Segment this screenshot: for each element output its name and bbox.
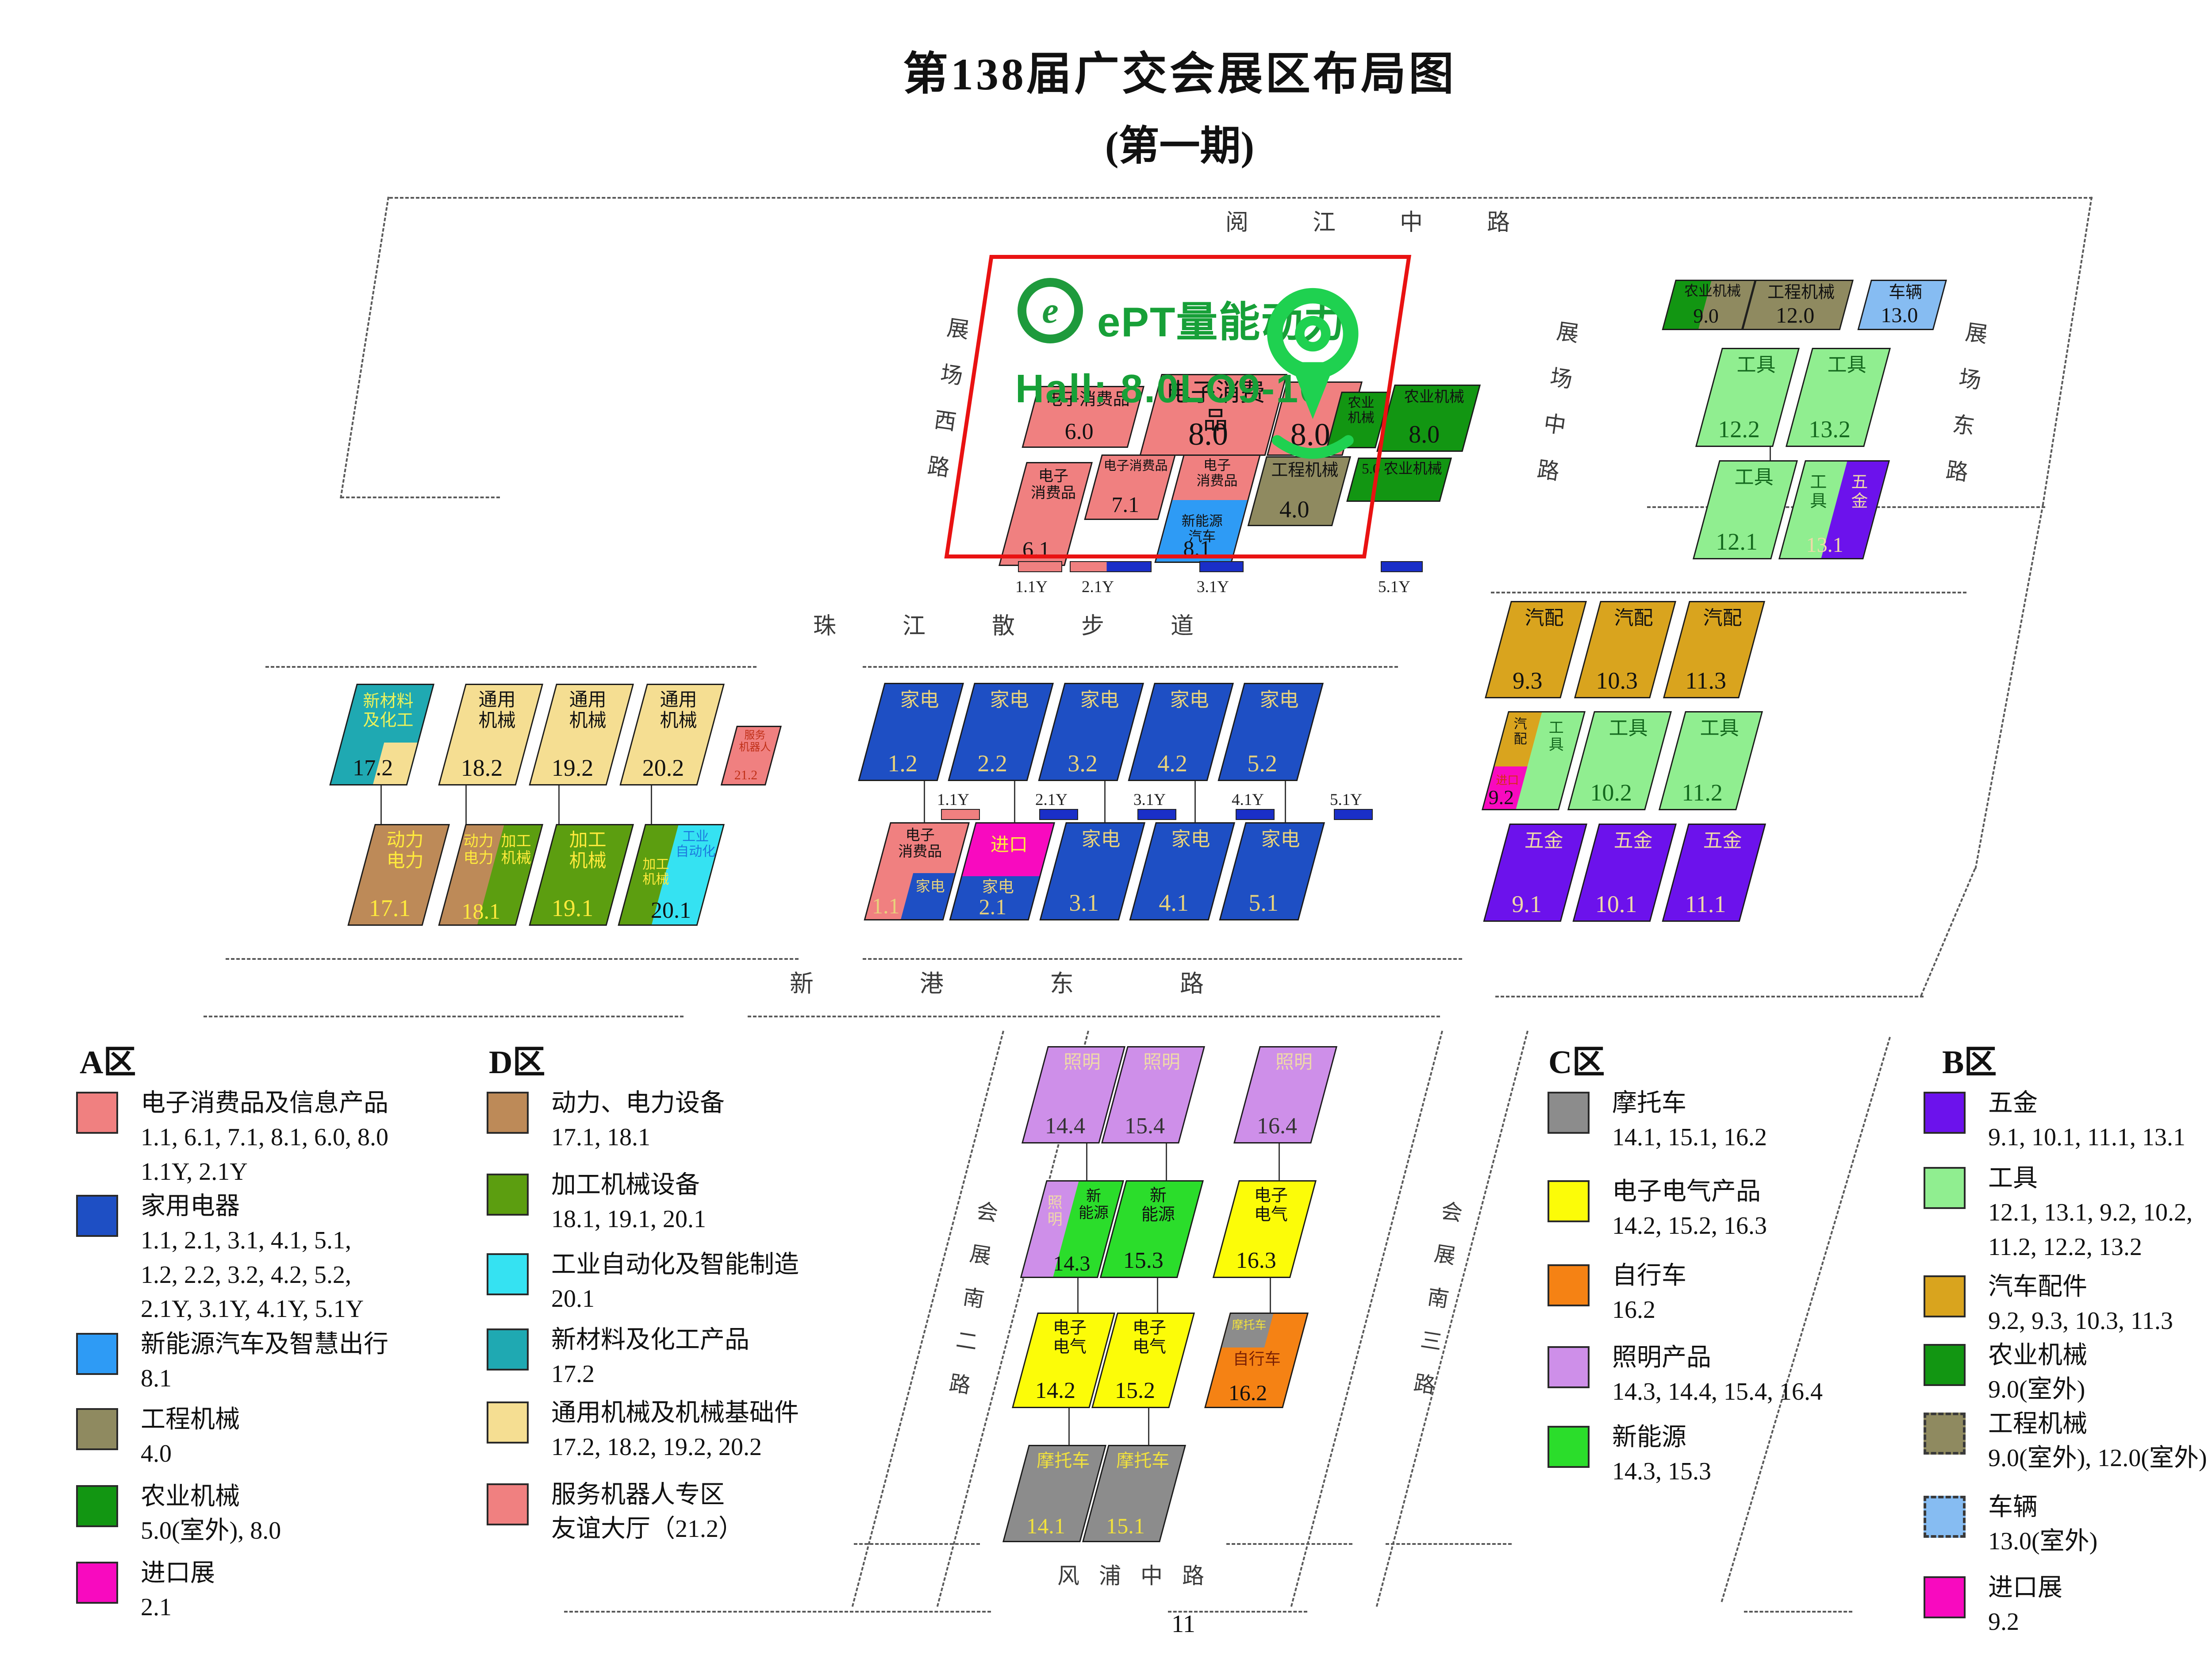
hall-2.1-number: 2.1 <box>954 894 1031 919</box>
legend-item-A-0: 电子消费品及信息产品 1.1, 6.1, 7.1, 8.1, 6.0, 8.0 … <box>141 1086 388 1189</box>
road-label-yuejiang: 阅江中路 <box>1225 212 1574 235</box>
hall-3.2-number: 3.2 <box>1044 750 1121 777</box>
hall-16.3-number: 16.3 <box>1218 1248 1294 1274</box>
hall-4.1: 家电4.1 <box>1129 822 1235 920</box>
building-outline-connector <box>924 781 925 823</box>
legend-item-D-3: 新材料及化工产品 17.2 <box>551 1323 749 1392</box>
hall-1.2-name: 家电 <box>881 689 958 711</box>
hall-5.1: 家电5.1 <box>1219 822 1325 920</box>
hall-5.0-name: 5.0 农业机械 <box>1356 461 1448 477</box>
hall-5.2-name: 家电 <box>1241 689 1318 711</box>
building-outline-connector <box>380 785 382 824</box>
hall-16.2-part-gray: 摩托车 <box>1222 1314 1274 1347</box>
hall-8.0c-name: 农业机械 <box>1392 389 1476 406</box>
legend-swatch-B-1 <box>1924 1167 1966 1209</box>
legend-item-A-5: 进口展 2.1 <box>141 1556 215 1625</box>
road-label-fengpu: 风浦中路 <box>1057 1565 1224 1587</box>
hall-16.4: 照明16.4 <box>1233 1046 1337 1143</box>
y-hall-bar-4.1Y <box>1236 809 1275 820</box>
hall-18.2-number: 18.2 <box>444 755 519 781</box>
building-outline-connector <box>1770 447 1771 461</box>
hall-6.0-number: 6.0 <box>1027 419 1131 445</box>
hall-2.1-part-magenta: 进口 <box>962 824 1053 876</box>
hall-11.3-name: 汽配 <box>1686 607 1759 629</box>
ept-logo-icon: e <box>1018 278 1083 343</box>
hall-2.2-name: 家电 <box>971 689 1048 711</box>
hall-7.1-name: 电子消费品 <box>1100 459 1171 473</box>
legend-swatch-B-3 <box>1924 1344 1966 1386</box>
legend-swatch-A-4 <box>76 1485 118 1527</box>
hall-16.4-number: 16.4 <box>1239 1113 1314 1139</box>
hall-12.0-name: 工程机械 <box>1753 283 1849 302</box>
hall-2.2-number: 2.2 <box>954 750 1031 777</box>
hall-16.2-number: 16.2 <box>1210 1380 1286 1405</box>
site-boundary-dashed-line <box>863 958 1462 960</box>
hall-19.1-number: 19.1 <box>535 895 610 921</box>
hall-11.1-name: 五金 <box>1685 830 1760 851</box>
hall-14.2-number: 14.2 <box>1018 1378 1093 1404</box>
y-hall-label-1.1Y: 1.1Y <box>937 790 969 809</box>
hall-1.2: 家电1.2 <box>858 683 964 781</box>
hall-6.1: 电子 消费品6.1 <box>998 462 1093 566</box>
hall-7.1-number: 7.1 <box>1090 492 1161 517</box>
hall-19.1-name: 加工 机械 <box>550 830 626 872</box>
hall-14.1-name: 摩托车 <box>1025 1451 1101 1471</box>
hall-9.3-name: 汽配 <box>1508 607 1581 629</box>
hall-12.0-number: 12.0 <box>1747 303 1843 327</box>
legend-item-C-4: 新能源 14.3, 15.3 <box>1612 1421 1711 1489</box>
legend-swatch-D-4 <box>487 1401 529 1444</box>
hall-8.1-number: 8.1 <box>1160 536 1234 561</box>
hall-18.2: 通用 机械18.2 <box>438 684 543 785</box>
building-outline-connector <box>1270 1278 1271 1313</box>
hall-15.3-number: 15.3 <box>1106 1248 1181 1274</box>
building-outline-connector <box>1157 1278 1158 1313</box>
site-boundary-dashed-line <box>341 497 500 498</box>
legend-item-A-4: 农业机械 5.0(室外), 8.0 <box>141 1480 281 1548</box>
y-hall-label-3.1Y: 3.1Y <box>1197 577 1229 597</box>
hall-11.2: 工具11.2 <box>1659 711 1763 810</box>
site-boundary-dashed-line <box>1491 592 1966 593</box>
hall-18.1-number: 18.1 <box>443 899 518 924</box>
building-outline-connector <box>465 785 467 824</box>
hall-7.1: 电子消费品7.1 <box>1084 454 1176 520</box>
hall-13.0: 车辆13.0 <box>1857 280 1947 330</box>
hall-16.2-name: 自行车 <box>1219 1350 1295 1368</box>
building-outline-connector <box>1285 781 1286 823</box>
hall-5.2: 家电5.2 <box>1218 683 1324 781</box>
hall-11.2-name: 工具 <box>1682 717 1757 739</box>
hall-1.2-number: 1.2 <box>864 750 941 777</box>
hall-11.3: 汽配11.3 <box>1663 601 1765 698</box>
road-label-east: 展 场 东 路 <box>1943 309 1991 497</box>
legend-item-B-4: 工程机械 9.0(室外), 12.0(室外) <box>1988 1407 2207 1476</box>
hall-5.2-number: 5.2 <box>1224 750 1301 777</box>
hall-10.2-name: 工具 <box>1591 717 1666 739</box>
hall-8.0c: 农业机械8.0 <box>1376 385 1481 452</box>
hall-18.1: 加工 机械动力 电力18.1 <box>438 824 543 926</box>
y-hall-label-4.1Y: 4.1Y <box>1232 790 1264 809</box>
page-subtitle: (第一期) <box>1105 113 1254 172</box>
hall-1.1-part-label: 家电 <box>910 879 951 895</box>
site-boundary-dashed-line <box>204 1016 684 1017</box>
y-hall-label-2.1Y: 2.1Y <box>1035 790 1068 809</box>
hall-13.1-name: 工 具 <box>1798 473 1839 511</box>
hall-10.1-name: 五金 <box>1596 830 1671 851</box>
hall-10.2: 工具10.2 <box>1567 711 1672 810</box>
site-boundary-dashed-line <box>389 197 2093 199</box>
legend-swatch-B-2 <box>1924 1275 1966 1317</box>
site-boundary-dashed-line <box>748 1016 1440 1017</box>
site-boundary-dashed-line <box>1920 868 1976 996</box>
legend-swatch-A-0 <box>76 1092 118 1134</box>
legend-swatch-B-0 <box>1924 1092 1966 1134</box>
hall-9.1: 五金9.1 <box>1483 824 1587 922</box>
hall-20.2: 通用 机械20.2 <box>619 684 725 785</box>
hall-11.3-number: 11.3 <box>1669 667 1743 694</box>
hall-14.1-number: 14.1 <box>1008 1513 1083 1538</box>
canton-fair-layout-map: 第138届广交会展区布局图 (第一期) e ePT量能动力 Hall: 8.0L… <box>0 0 2212 1667</box>
hall-4.2: 家电4.2 <box>1128 683 1234 781</box>
legend-item-D-0: 动力、电力设备 17.1, 18.1 <box>551 1086 725 1155</box>
hall-17.2-number: 17.2 <box>335 755 411 781</box>
legend-title-B: B区 <box>1942 1036 1997 1083</box>
hall-15.4-name: 照明 <box>1124 1052 1199 1073</box>
site-boundary-dashed-line <box>1974 504 2044 869</box>
legend-swatch-C-4 <box>1548 1426 1590 1468</box>
legend-swatch-B-5 <box>1924 1496 1966 1538</box>
legend-swatch-B-4 <box>1924 1413 1966 1455</box>
hall-14.3-name: 新 能源 <box>1071 1188 1116 1222</box>
hall-13.1-part-label: 五 金 <box>1839 473 1880 511</box>
building-outline-connector <box>558 785 560 824</box>
page-title: 第138届广交会展区布局图 <box>903 38 1456 103</box>
hall-8.1-name: 电子 消费品 <box>1180 458 1255 489</box>
hall-15.1-number: 15.1 <box>1088 1513 1163 1538</box>
hall-15.2-name: 电子 电气 <box>1112 1319 1187 1356</box>
hall-16.3: 电子 电气16.3 <box>1213 1180 1317 1278</box>
hall-2.1-part-label: 进口 <box>971 835 1048 856</box>
hall-13.0-name: 车辆 <box>1869 283 1942 302</box>
hall-15.1-name: 摩托车 <box>1105 1451 1180 1471</box>
road-label-zhujiang: 珠江散步道 <box>813 615 1260 638</box>
site-boundary-dashed-line <box>1495 996 1924 997</box>
site-boundary-dashed-line <box>1376 1031 1528 1607</box>
hall-6.1-number: 6.1 <box>1004 537 1068 562</box>
hall-11.1-number: 11.1 <box>1668 891 1743 917</box>
site-boundary-dashed-line <box>1744 1611 1852 1613</box>
legend-item-C-1: 电子电气产品 14.2, 15.2, 16.3 <box>1612 1175 1767 1244</box>
y-hall-bar-3.1Y <box>1137 809 1176 820</box>
hall-4.2-name: 家电 <box>1151 689 1228 711</box>
site-boundary-dashed-line <box>863 666 1398 668</box>
y-hall-bar-5.1Y <box>1334 809 1373 820</box>
hall-5.1-name: 家电 <box>1242 828 1319 850</box>
legend-title-D: D区 <box>489 1036 545 1083</box>
site-boundary-dashed-line <box>265 666 757 668</box>
y-hall-bar-2.1Y <box>1070 561 1152 572</box>
site-boundary-dashed-line <box>564 1611 991 1613</box>
legend-item-D-4: 通用机械及机械基础件 17.2, 18.2, 19.2, 20.2 <box>551 1396 799 1465</box>
hall-17.1: 动力 电力17.1 <box>347 824 450 926</box>
hall-14.2-name: 电子 电气 <box>1032 1319 1107 1356</box>
hall-10.1: 五金10.1 <box>1573 824 1677 922</box>
hall-4.1-name: 家电 <box>1152 828 1229 850</box>
hall-3.1: 家电3.1 <box>1040 822 1145 920</box>
hall-20.2-name: 通用 机械 <box>641 690 716 731</box>
building-outline-connector <box>1148 1408 1149 1445</box>
hall-12.1-number: 12.1 <box>1699 528 1775 555</box>
legend-item-B-6: 进口展 9.2 <box>1988 1571 2062 1640</box>
hall-16.2-part-label: 摩托车 <box>1228 1319 1270 1332</box>
legend-item-D-5: 服务机器人专区 友谊大厅（21.2） <box>551 1478 743 1547</box>
hall-12.2: 工具12.2 <box>1695 348 1800 447</box>
hall-16.3-name: 电子 电气 <box>1233 1186 1309 1224</box>
hall-12.2-name: 工具 <box>1719 354 1794 376</box>
site-boundary-dashed-line <box>1386 1543 1512 1545</box>
legend-swatch-C-2 <box>1548 1264 1590 1306</box>
hall-14.4-name: 照明 <box>1045 1052 1120 1073</box>
building-outline-connector <box>1086 1143 1087 1181</box>
hall-19.2-number: 19.2 <box>535 755 610 781</box>
hall-9.1-number: 9.1 <box>1489 891 1564 917</box>
building-outline-connector <box>1194 781 1196 823</box>
hall-13.2: 工具13.2 <box>1786 348 1891 447</box>
hall-10.3-name: 汽配 <box>1597 607 1671 629</box>
legend-item-D-1: 加工机械设备 18.1, 19.1, 20.1 <box>551 1168 706 1237</box>
hall-11.1: 五金11.1 <box>1662 824 1766 922</box>
hall-15.4-number: 15.4 <box>1107 1113 1182 1139</box>
hall-1.1-number: 1.1 <box>848 893 925 918</box>
hall-12.1-name: 工具 <box>1716 466 1792 488</box>
hall-1.1-name: 电子 消费品 <box>887 828 953 860</box>
site-boundary-dashed-line <box>226 958 799 960</box>
legend-swatch-D-0 <box>487 1092 529 1134</box>
y-hall-label-3.1Y: 3.1Y <box>1133 790 1166 809</box>
hall-10.2-number: 10.2 <box>1574 779 1649 806</box>
legend-title-C: C区 <box>1548 1036 1605 1083</box>
hall-10.1-number: 10.1 <box>1578 891 1654 917</box>
hall-2.2: 家电2.2 <box>948 683 1054 781</box>
hall-21.2-name: 服务 机器人 <box>733 730 776 754</box>
hall-3.1-number: 3.1 <box>1045 889 1122 916</box>
location-pin-icon <box>1251 262 1370 510</box>
legend-item-B-5: 车辆 13.0(室外) <box>1988 1490 2097 1559</box>
hall-4.1-number: 4.1 <box>1135 889 1212 916</box>
hall-13.1: 五 金工 具13.1 <box>1778 460 1890 559</box>
legend-swatch-A-3 <box>76 1408 118 1450</box>
site-boundary-dashed-line <box>1226 1543 1352 1545</box>
y-hall-label-5.1Y: 5.1Y <box>1378 577 1410 597</box>
hall-17.1-name: 动力 电力 <box>369 830 442 872</box>
hall-15.3-name: 新 能源 <box>1121 1186 1196 1224</box>
y-hall-bar-2.1Y <box>1039 809 1078 820</box>
hall-5.1-number: 5.1 <box>1225 889 1302 916</box>
legend-swatch-B-6 <box>1924 1576 1966 1618</box>
building-outline-connector <box>1077 1278 1079 1313</box>
hall-20.1-number: 20.1 <box>632 898 709 924</box>
legend-item-B-3: 农业机械 9.0(室外) <box>1988 1339 2087 1407</box>
legend-item-B-0: 五金 9.1, 10.1, 11.1, 13.1 <box>1988 1086 2185 1155</box>
building-outline-connector <box>1104 781 1106 823</box>
hall-17.2: 新材料 及化工17.2 <box>329 684 434 785</box>
legend-swatch-C-0 <box>1548 1092 1590 1134</box>
hall-9.0-name: 农业机械 <box>1674 283 1751 299</box>
hall-13.2-name: 工具 <box>1809 354 1885 376</box>
hall-9.1-name: 五金 <box>1506 830 1582 851</box>
hall-16.2: 摩托车自行车16.2 <box>1204 1313 1309 1408</box>
hall-16.4-name: 照明 <box>1256 1052 1332 1073</box>
hall-3.1-name: 家电 <box>1063 828 1140 850</box>
legend-title-A: A区 <box>80 1036 136 1083</box>
hall-14.3-part-label: 照 明 <box>1039 1195 1071 1228</box>
legend-item-A-2: 新能源汽车及智慧出行 8.1 <box>141 1328 388 1396</box>
y-hall-bar-1.1Y <box>941 809 980 820</box>
legend-item-A-1: 家用电器 1.1, 2.1, 3.1, 4.1, 5.1, 1.2, 2.2, … <box>141 1190 364 1326</box>
hall-19.2: 通用 机械19.2 <box>529 684 634 785</box>
hall-14.4-number: 14.4 <box>1027 1113 1102 1139</box>
hall-13.1-number: 13.1 <box>1784 533 1866 557</box>
legend-item-B-1: 工具 12.1, 13.1, 9.2, 10.2, 11.2, 12.2, 13… <box>1988 1162 2193 1264</box>
y-hall-bar-5.1Y <box>1381 561 1423 572</box>
building-outline-connector <box>1279 1143 1280 1181</box>
hall-18.1-name: 动力 电力 <box>460 833 497 867</box>
site-boundary-dashed-line <box>2042 196 2093 505</box>
hall-21.2: 服务 机器人21.2 <box>721 726 782 785</box>
legend-item-D-2: 工业自动化及智能制造 20.1 <box>551 1248 799 1317</box>
hall-3.2-name: 家电 <box>1061 689 1138 711</box>
hall-9.2: 汽 配进口工 具9.2 <box>1482 711 1586 810</box>
hall-13.2-number: 13.2 <box>1792 416 1868 443</box>
legend-item-C-3: 照明产品 14.3, 14.4, 15.4, 16.4 <box>1612 1341 1823 1409</box>
hall-3.2: 家电3.2 <box>1038 683 1144 781</box>
y-hall-label-5.1Y: 5.1Y <box>1330 790 1362 809</box>
building-outline-connector <box>1166 1143 1167 1181</box>
hall-9.2-number: 9.2 <box>1464 786 1539 809</box>
building-outline-connector <box>1068 1408 1070 1445</box>
hall-17.2-name: 新材料 及化工 <box>351 692 426 730</box>
legend-swatch-A-5 <box>76 1562 118 1604</box>
hall-19.2-name: 通用 机械 <box>550 690 626 731</box>
hall-11.2-number: 11.2 <box>1665 779 1740 806</box>
hall-21.2-number: 21.2 <box>725 768 767 783</box>
hall-19.1: 加工 机械19.1 <box>529 824 634 926</box>
hall-10.3-number: 10.3 <box>1580 667 1654 694</box>
hall-20.1-name: 加工 机械 <box>634 857 678 887</box>
legend-swatch-D-5 <box>487 1483 529 1525</box>
hall-4.2-number: 4.2 <box>1134 750 1211 777</box>
hall-10.3: 汽配10.3 <box>1574 601 1676 698</box>
hall-6.1-name: 电子 消费品 <box>1022 468 1085 502</box>
road-label-west: 展 场 西 路 <box>925 305 972 492</box>
building-outline-connector <box>1014 781 1015 823</box>
hall-9.2-part-label: 汽 配 <box>1504 717 1537 747</box>
legend-swatch-C-1 <box>1548 1180 1590 1222</box>
site-boundary-dashed-line <box>852 1031 1004 1607</box>
hall-17.1-number: 17.1 <box>353 895 426 921</box>
hall-9.3-number: 9.3 <box>1491 667 1564 694</box>
page-number: 11 <box>1171 1610 1195 1638</box>
road-label-xingang: 新港东路 <box>790 972 1310 996</box>
hall-9.2-name: 工 具 <box>1536 720 1578 754</box>
y-hall-bar-1.1Y <box>1018 561 1062 572</box>
hall-20.1: 工业 自动化加工 机械20.1 <box>618 824 725 926</box>
hall-20.2-number: 20.2 <box>626 755 701 781</box>
hall-9.2-part-label: 进口 <box>1491 774 1524 787</box>
y-hall-label-1.1Y: 1.1Y <box>1015 577 1048 597</box>
hall-9.0-number: 9.0 <box>1667 304 1745 327</box>
hall-8.0c-number: 8.0 <box>1382 421 1466 449</box>
y-hall-label-2.1Y: 2.1Y <box>1082 577 1114 597</box>
hall-18.1-part-label: 加工 机械 <box>497 833 535 867</box>
y-hall-bar-3.1Y <box>1199 561 1244 572</box>
legend-item-A-3: 工程机械 4.0 <box>141 1403 240 1471</box>
hall-20.1-part-label: 工业 自动化 <box>673 829 718 859</box>
legend-swatch-C-3 <box>1548 1346 1590 1388</box>
road-label-south2: 会 展 南 二 路 <box>946 1190 1001 1408</box>
hall-2.1-name: 家电 <box>960 878 1037 896</box>
building-outline-connector <box>651 785 652 824</box>
legend-item-C-0: 摩托车 14.1, 15.1, 16.2 <box>1612 1086 1767 1155</box>
legend-item-C-2: 自行车 16.2 <box>1612 1259 1686 1328</box>
legend-swatch-A-2 <box>76 1333 118 1375</box>
hall-12.0: 工程机械12.0 <box>1742 280 1854 330</box>
legend-swatch-D-1 <box>487 1174 529 1216</box>
road-label-mid: 展 场 中 路 <box>1534 308 1582 496</box>
legend-swatch-D-2 <box>487 1253 529 1295</box>
site-boundary-dashed-line <box>340 196 389 498</box>
hall-18.2-name: 通用 机械 <box>460 690 535 731</box>
site-boundary-dashed-line <box>854 1543 980 1545</box>
hall-15.2-number: 15.2 <box>1097 1378 1172 1404</box>
legend-swatch-A-1 <box>76 1195 118 1237</box>
hall-9.0: 农业机械9.0 <box>1662 280 1756 330</box>
hall-12.2-number: 12.2 <box>1701 416 1777 443</box>
legend-swatch-D-3 <box>487 1328 529 1371</box>
hall-9.3: 汽配9.3 <box>1485 601 1587 698</box>
hall-14.3-number: 14.3 <box>1034 1252 1110 1276</box>
legend-item-B-2: 汽车配件 9.2, 9.3, 10.3, 11.3 <box>1988 1270 2173 1339</box>
hall-13.0-number: 13.0 <box>1863 304 1936 327</box>
